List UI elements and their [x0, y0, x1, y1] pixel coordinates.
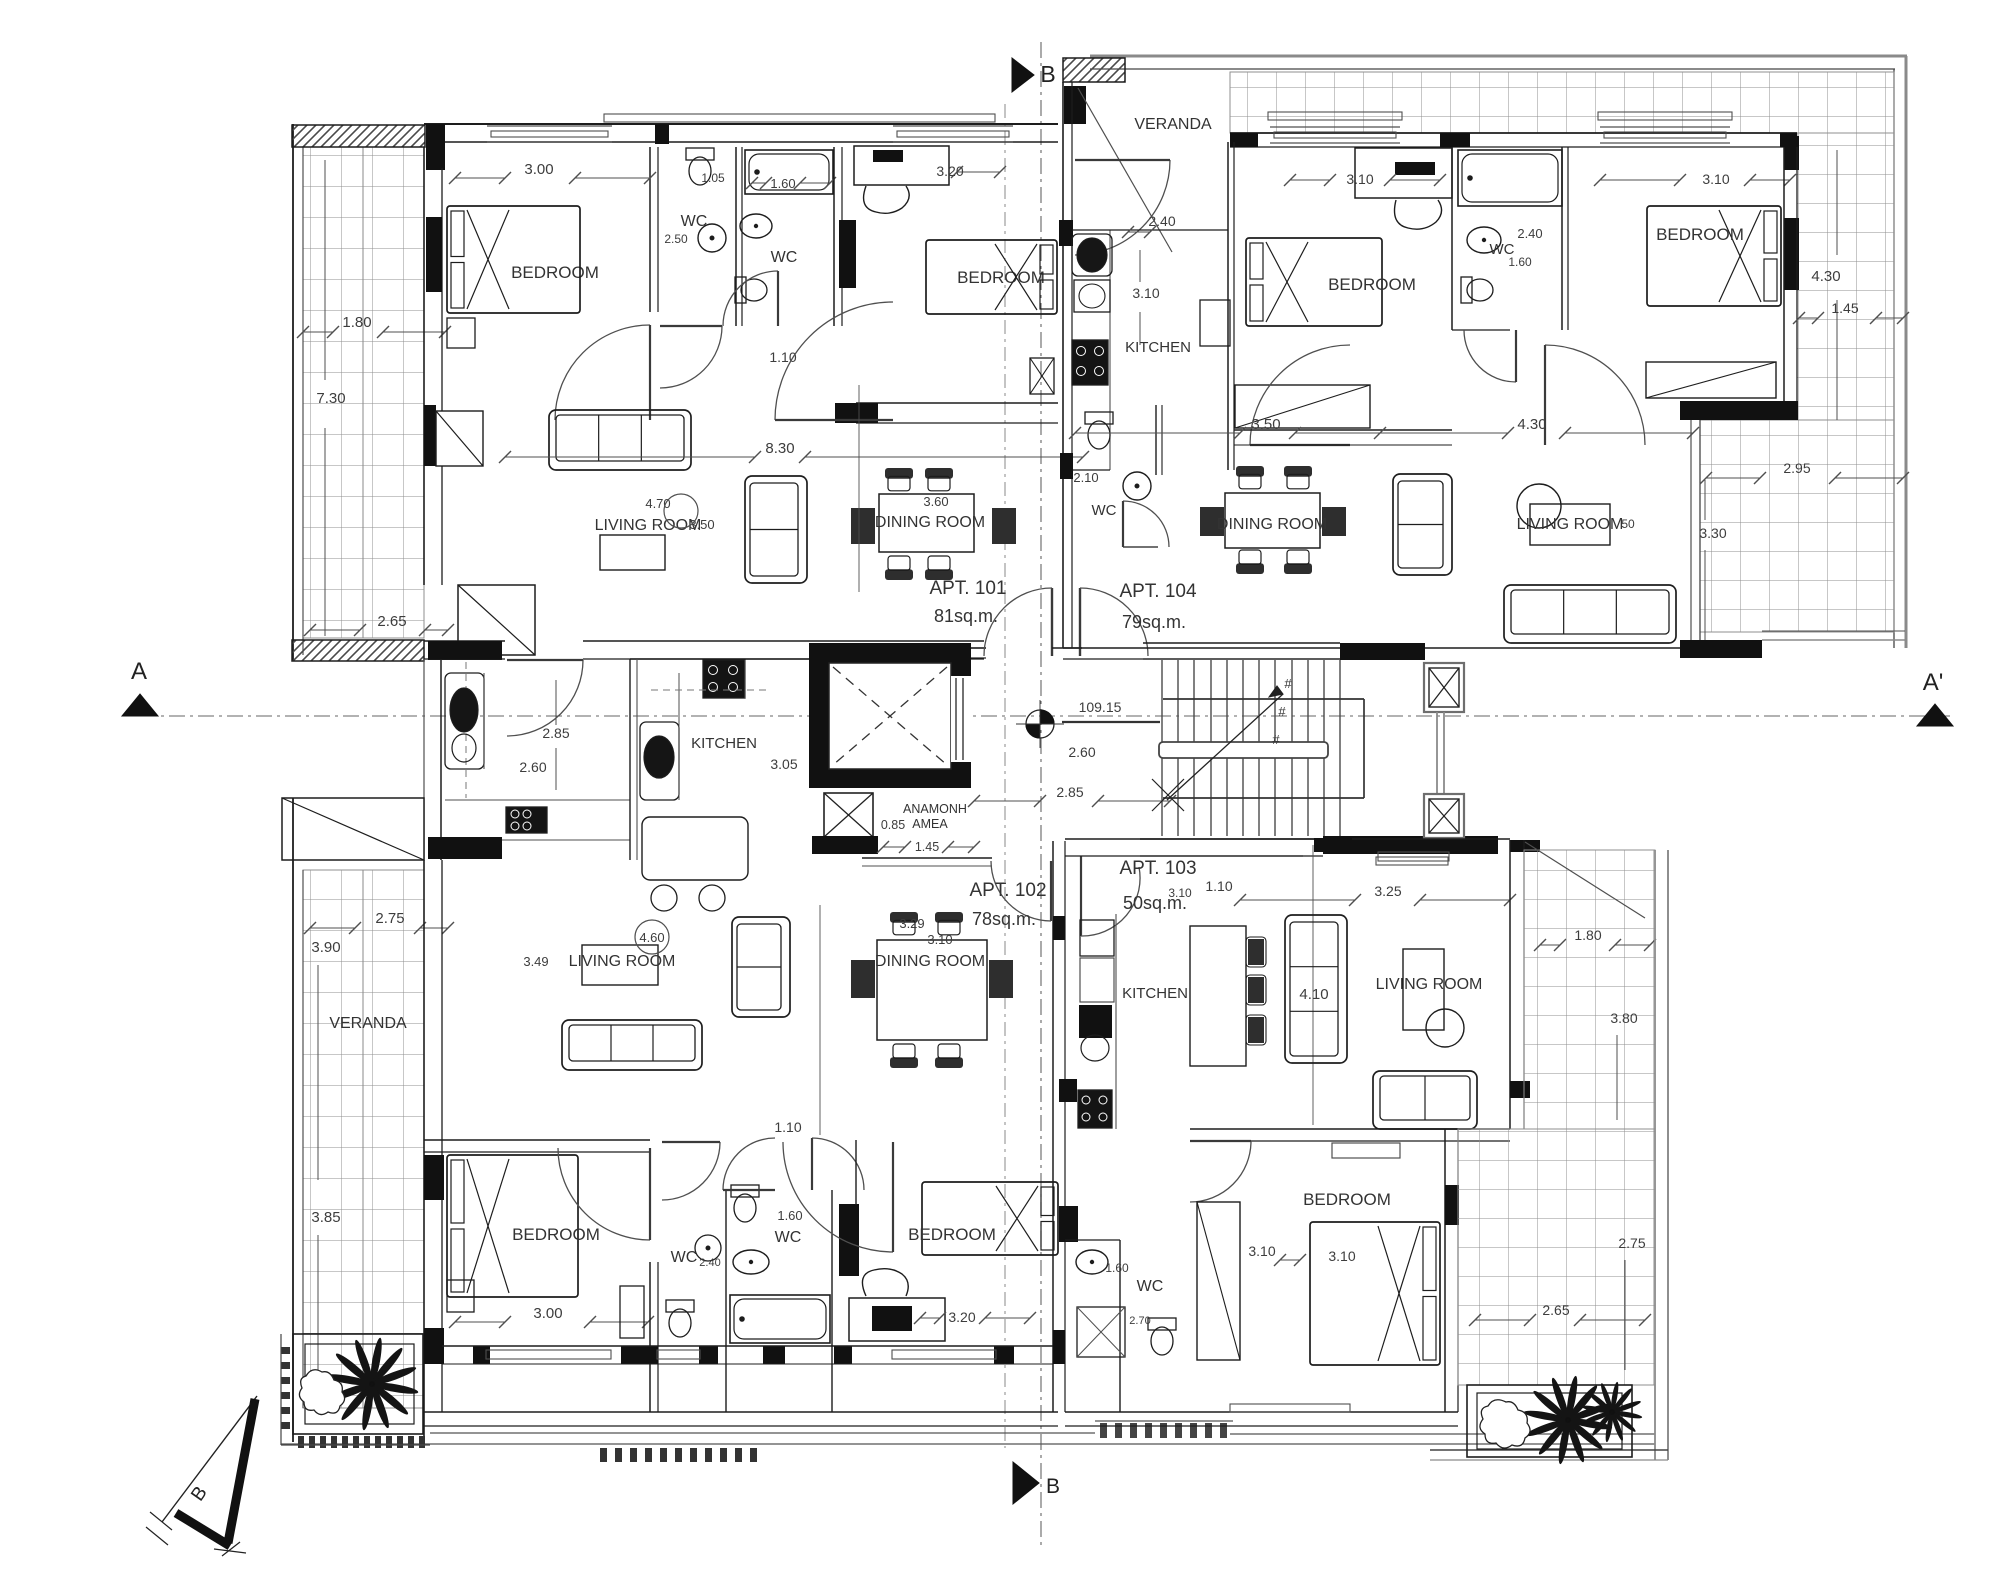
svg-text:LIVING ROOM: LIVING ROOM: [569, 953, 676, 970]
svg-text:4.60: 4.60: [639, 930, 664, 945]
svg-text:1.05: 1.05: [701, 171, 725, 185]
svg-text:1.10: 1.10: [774, 1119, 801, 1135]
svg-text:3.10: 3.10: [1248, 1243, 1275, 1259]
svg-text:AMEA: AMEA: [912, 817, 948, 831]
svg-text:8.30: 8.30: [765, 440, 794, 457]
svg-text:1.60: 1.60: [770, 176, 795, 191]
svg-text:2.40: 2.40: [1517, 226, 1542, 241]
svg-text:VERANDA: VERANDA: [1134, 116, 1212, 133]
svg-text:3.29: 3.29: [899, 916, 924, 931]
svg-text:WC: WC: [1092, 502, 1117, 519]
svg-text:2.50: 2.50: [664, 232, 688, 246]
svg-text:3.10: 3.10: [1132, 285, 1159, 301]
svg-text:BEDROOM: BEDROOM: [957, 268, 1045, 287]
svg-text:4.10: 4.10: [1299, 986, 1328, 1003]
svg-text:B: B: [1046, 1475, 1060, 1498]
svg-text:3.25: 3.25: [1374, 883, 1401, 899]
svg-text:#: #: [1272, 732, 1280, 747]
svg-text:2.70: 2.70: [1129, 1315, 1150, 1327]
svg-text:#: #: [1284, 676, 1292, 691]
svg-text:3.10: 3.10: [1328, 1248, 1355, 1264]
svg-text:VERANDA: VERANDA: [329, 1015, 407, 1032]
svg-text:2.85: 2.85: [542, 725, 569, 741]
svg-text:3.30: 3.30: [1699, 525, 1726, 541]
svg-text:DINING ROOM: DINING ROOM: [1217, 516, 1327, 533]
svg-text:1.80: 1.80: [342, 314, 371, 331]
svg-text:ANAMONH: ANAMONH: [903, 802, 967, 816]
svg-text:1.45: 1.45: [915, 840, 939, 854]
svg-text:APT. 102: APT. 102: [969, 880, 1046, 901]
svg-text:4.30: 4.30: [1517, 416, 1546, 433]
svg-text:WC: WC: [771, 249, 798, 266]
svg-text:BEDROOM: BEDROOM: [511, 263, 599, 282]
svg-text:2.40: 2.40: [1148, 213, 1175, 229]
svg-text:3.10: 3.10: [927, 932, 952, 947]
svg-text:APT. 103: APT. 103: [1119, 858, 1196, 879]
svg-text:3.20: 3.20: [936, 163, 963, 179]
svg-text:4.70: 4.70: [645, 496, 670, 511]
svg-text:BEDROOM: BEDROOM: [1328, 275, 1416, 294]
svg-text:3.05: 3.05: [770, 756, 797, 772]
svg-text:A': A': [1923, 669, 1944, 696]
svg-text:3.49: 3.49: [523, 954, 548, 969]
svg-text:3.80: 3.80: [1610, 1010, 1637, 1026]
svg-text:4.30: 4.30: [1811, 268, 1840, 285]
svg-text:A: A: [131, 658, 147, 685]
svg-text:2.65: 2.65: [1542, 1302, 1569, 1318]
svg-text:1.60: 1.60: [1105, 1261, 1129, 1275]
svg-text:79sq.m.: 79sq.m.: [1122, 612, 1186, 632]
svg-text:3.10: 3.10: [1346, 171, 1373, 187]
svg-text:BEDROOM: BEDROOM: [1656, 225, 1744, 244]
svg-text:2.10: 2.10: [1073, 470, 1098, 485]
svg-text:KITCHEN: KITCHEN: [1122, 985, 1188, 1002]
svg-text:1.60: 1.60: [1508, 255, 1532, 269]
svg-text:APT. 101: APT. 101: [929, 578, 1006, 599]
svg-text:APT. 104: APT. 104: [1119, 581, 1197, 602]
svg-text:2.85: 2.85: [1056, 784, 1083, 800]
svg-text:LIVING ROOM: LIVING ROOM: [595, 517, 702, 534]
svg-text:#: #: [1278, 704, 1286, 719]
svg-text:3.10: 3.10: [1702, 171, 1729, 187]
svg-text:1.80: 1.80: [1574, 927, 1601, 943]
svg-text:3.00: 3.00: [533, 1305, 562, 1322]
svg-text:2.60: 2.60: [519, 759, 546, 775]
svg-text:BEDROOM: BEDROOM: [512, 1225, 600, 1244]
svg-text:50: 50: [1621, 517, 1635, 531]
svg-text:BEDROOM: BEDROOM: [1303, 1190, 1391, 1209]
svg-text:DINING ROOM: DINING ROOM: [875, 514, 985, 531]
svg-text:3.50: 3.50: [689, 517, 714, 532]
svg-text:2.75: 2.75: [375, 910, 404, 927]
svg-text:B: B: [1040, 61, 1055, 87]
svg-text:3.00: 3.00: [524, 161, 553, 178]
svg-text:LIVING ROOM: LIVING ROOM: [1517, 516, 1624, 533]
svg-text:KITCHEN: KITCHEN: [1125, 339, 1191, 356]
svg-text:2.60: 2.60: [1068, 744, 1095, 760]
svg-text:DINING ROOM: DINING ROOM: [875, 953, 985, 970]
svg-text:WC: WC: [681, 213, 708, 230]
svg-text:7.30: 7.30: [316, 390, 345, 407]
svg-text:2.95: 2.95: [1783, 460, 1810, 476]
svg-text:3.10: 3.10: [1168, 886, 1192, 900]
svg-text:WC: WC: [671, 1249, 698, 1266]
svg-text:WC: WC: [775, 1229, 802, 1246]
svg-text:WC: WC: [1137, 1278, 1164, 1295]
svg-text:1.10: 1.10: [1205, 878, 1232, 894]
svg-text:1.45: 1.45: [1831, 300, 1858, 316]
svg-text:3.60: 3.60: [923, 494, 948, 509]
svg-text:78sq.m.: 78sq.m.: [972, 909, 1036, 929]
svg-text:BEDROOM: BEDROOM: [908, 1225, 996, 1244]
svg-text:81sq.m.: 81sq.m.: [934, 606, 998, 626]
svg-text:3.90: 3.90: [311, 939, 340, 956]
svg-text:3.50: 3.50: [1251, 416, 1280, 433]
svg-text:0.85: 0.85: [881, 818, 905, 832]
svg-text:2.65: 2.65: [377, 613, 406, 630]
svg-text:LIVING ROOM: LIVING ROOM: [1376, 976, 1483, 993]
svg-text:2.75: 2.75: [1618, 1235, 1645, 1251]
svg-text:3.85: 3.85: [311, 1209, 340, 1226]
svg-text:2.40: 2.40: [699, 1257, 720, 1269]
svg-text:109.15: 109.15: [1079, 699, 1122, 715]
svg-text:1.60: 1.60: [777, 1208, 802, 1223]
svg-text:KITCHEN: KITCHEN: [691, 735, 757, 752]
svg-text:3.20: 3.20: [948, 1309, 975, 1325]
